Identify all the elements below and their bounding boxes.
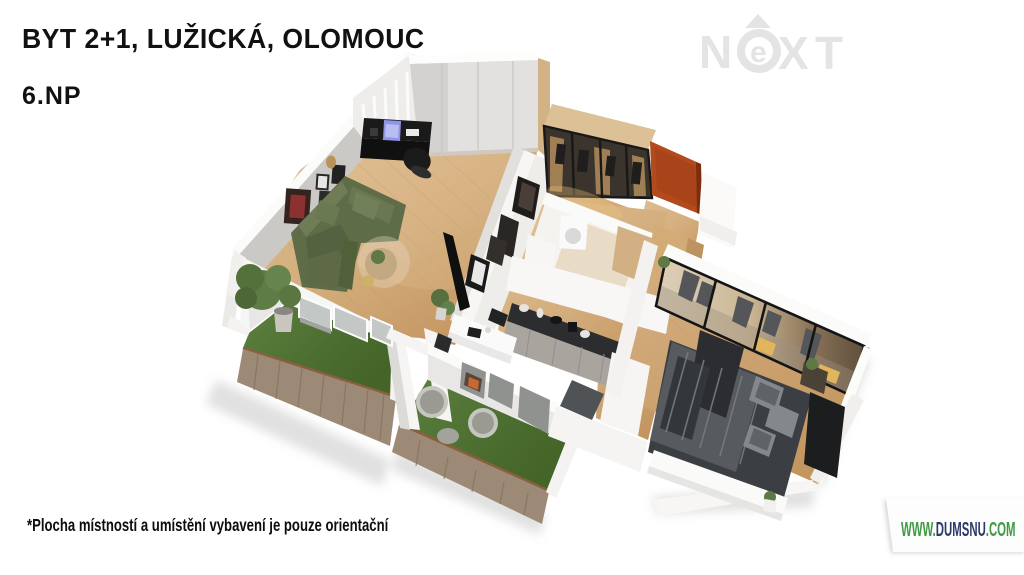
svg-text:e: e — [750, 36, 767, 69]
svg-text:BYT 2+1, LUŽICKÁ, OLOMOUC: BYT 2+1, LUŽICKÁ, OLOMOUC — [22, 22, 425, 54]
svg-text:T: T — [815, 27, 843, 79]
svg-text:X: X — [778, 27, 809, 79]
svg-text:*Plocha místností a umístění v: *Plocha místností a umístění vybavení je… — [27, 516, 389, 535]
svg-text:6.NP: 6.NP — [22, 82, 82, 110]
svg-text:WWW.DUMSNU.COM: WWW.DUMSNU.COM — [901, 519, 1016, 541]
svg-text:N: N — [699, 26, 732, 78]
